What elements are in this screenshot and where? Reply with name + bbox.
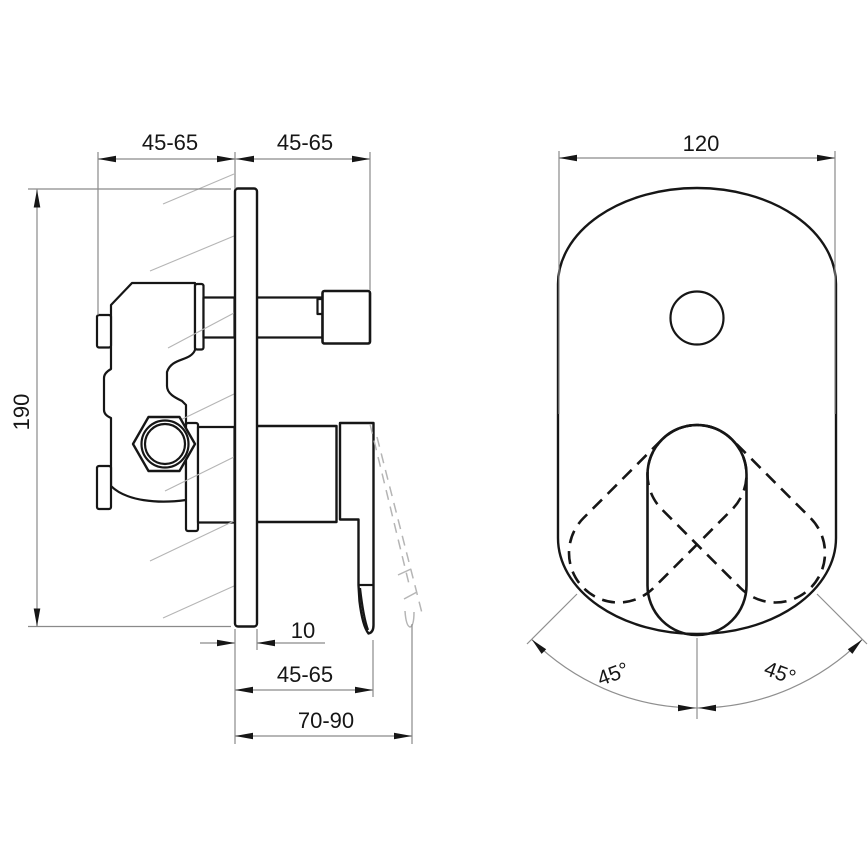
arrowhead (235, 687, 253, 694)
arrowhead (98, 156, 116, 163)
mounting-tab-lower (97, 466, 111, 509)
arrowhead (848, 640, 862, 654)
arrowhead (34, 609, 41, 627)
cartridge-housing (198, 427, 235, 523)
angle-extension-line (527, 594, 577, 644)
ghost-tick (398, 569, 411, 575)
handle-rotated-ghost-side (370, 424, 423, 627)
arrowhead (236, 156, 254, 163)
arrowhead (355, 687, 373, 694)
wall-hatch-line (150, 236, 234, 271)
angle-extension-line (817, 594, 867, 644)
arrowhead (34, 190, 41, 208)
dim-offset-left-label: 45-65 (142, 130, 198, 155)
ghost-edge (377, 437, 423, 617)
dim-offset-right-label: 45-65 (277, 130, 333, 155)
dim-handle-depth-label: 45-65 (277, 662, 333, 687)
arrowhead (559, 155, 577, 162)
dim-plate-thickness-label: 10 (291, 618, 315, 643)
wall-plate-side (235, 189, 257, 627)
arrowhead (352, 156, 370, 163)
dim-width-label: 120 (683, 131, 720, 156)
technical-drawing-page: 45-65 45-65 190 10 45-65 (0, 0, 868, 868)
ghost-edge (370, 424, 409, 584)
handle-base-cylinder (257, 426, 337, 522)
arrowhead (817, 155, 835, 162)
mounting-tab-upper (97, 315, 111, 348)
arrowhead (699, 705, 717, 712)
dim-total-depth-label: 70-90 (298, 708, 354, 733)
arrowhead (394, 733, 412, 740)
cover-plate-front (558, 188, 836, 634)
ghost-tick (404, 592, 417, 599)
dim-angle-left-label: 45° (594, 658, 632, 690)
arrowhead (257, 640, 275, 647)
arrowhead (678, 705, 696, 712)
wall-hatch-line (163, 586, 234, 618)
mixer-installation-drawing: 45-65 45-65 190 10 45-65 (0, 0, 868, 868)
arrowhead (217, 156, 235, 163)
dim-height-label: 190 (9, 394, 34, 431)
dim-angle-right-label: 45° (761, 657, 799, 689)
inlet-pipe-wall-side (204, 298, 235, 338)
lever-handle-side (340, 423, 374, 634)
arrowhead (235, 733, 253, 740)
diverter-knob (323, 291, 371, 344)
arrowhead (217, 640, 235, 647)
inlet-flange (195, 284, 204, 350)
arrowhead (532, 640, 546, 654)
spindle-pipe-front (257, 298, 323, 338)
ghost-tip (405, 611, 414, 627)
side-view: 45-65 45-65 190 10 45-65 (9, 130, 423, 744)
front-view: 120 45° 45° (527, 131, 867, 719)
